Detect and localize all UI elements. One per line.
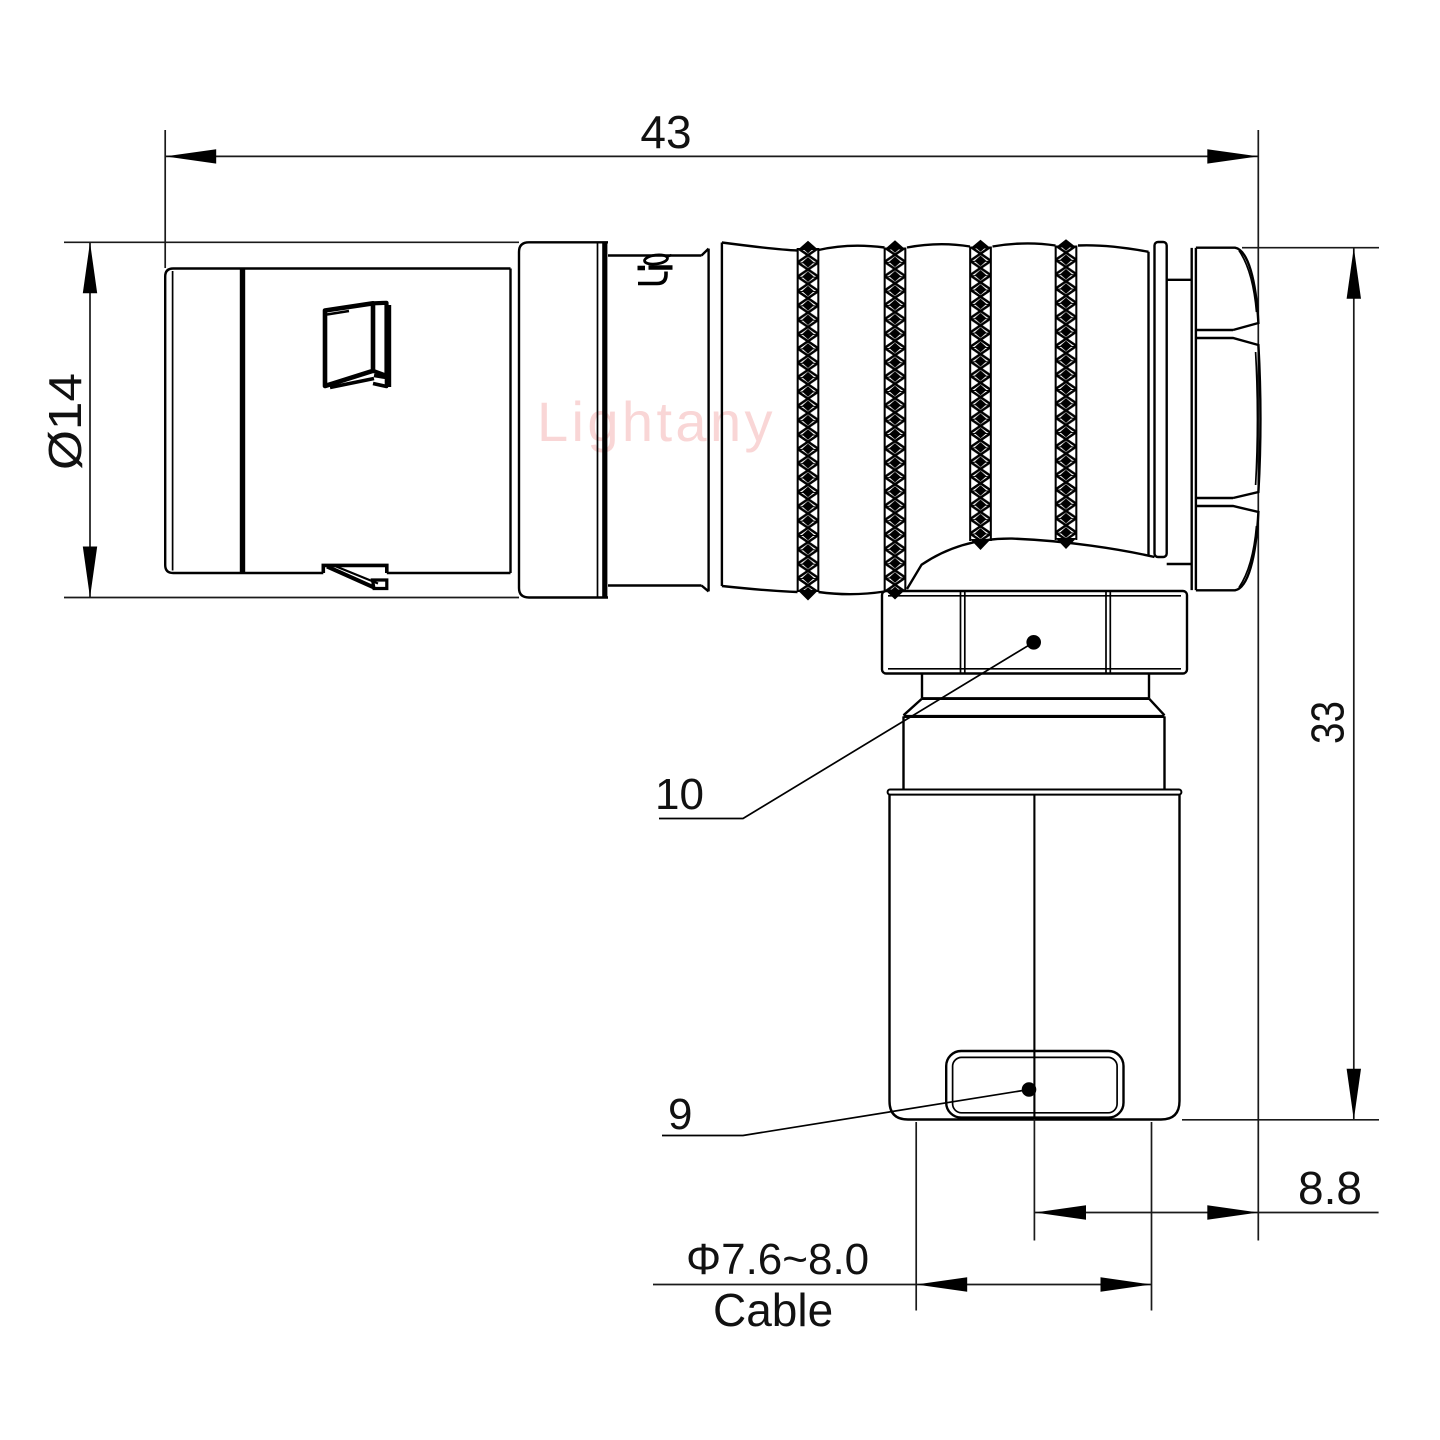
svg-text:8.8: 8.8: [1298, 1162, 1362, 1214]
svg-text:Cable: Cable: [713, 1284, 833, 1336]
svg-text:9: 9: [668, 1090, 692, 1139]
svg-text:Ø14: Ø14: [39, 373, 91, 470]
svg-text:10: 10: [655, 770, 704, 819]
svg-text:Lightany: Lightany: [537, 390, 776, 453]
svg-text:43: 43: [640, 106, 691, 158]
svg-text:Φ7.6~8.0: Φ7.6~8.0: [686, 1235, 869, 1284]
svg-text:33: 33: [1302, 701, 1354, 744]
